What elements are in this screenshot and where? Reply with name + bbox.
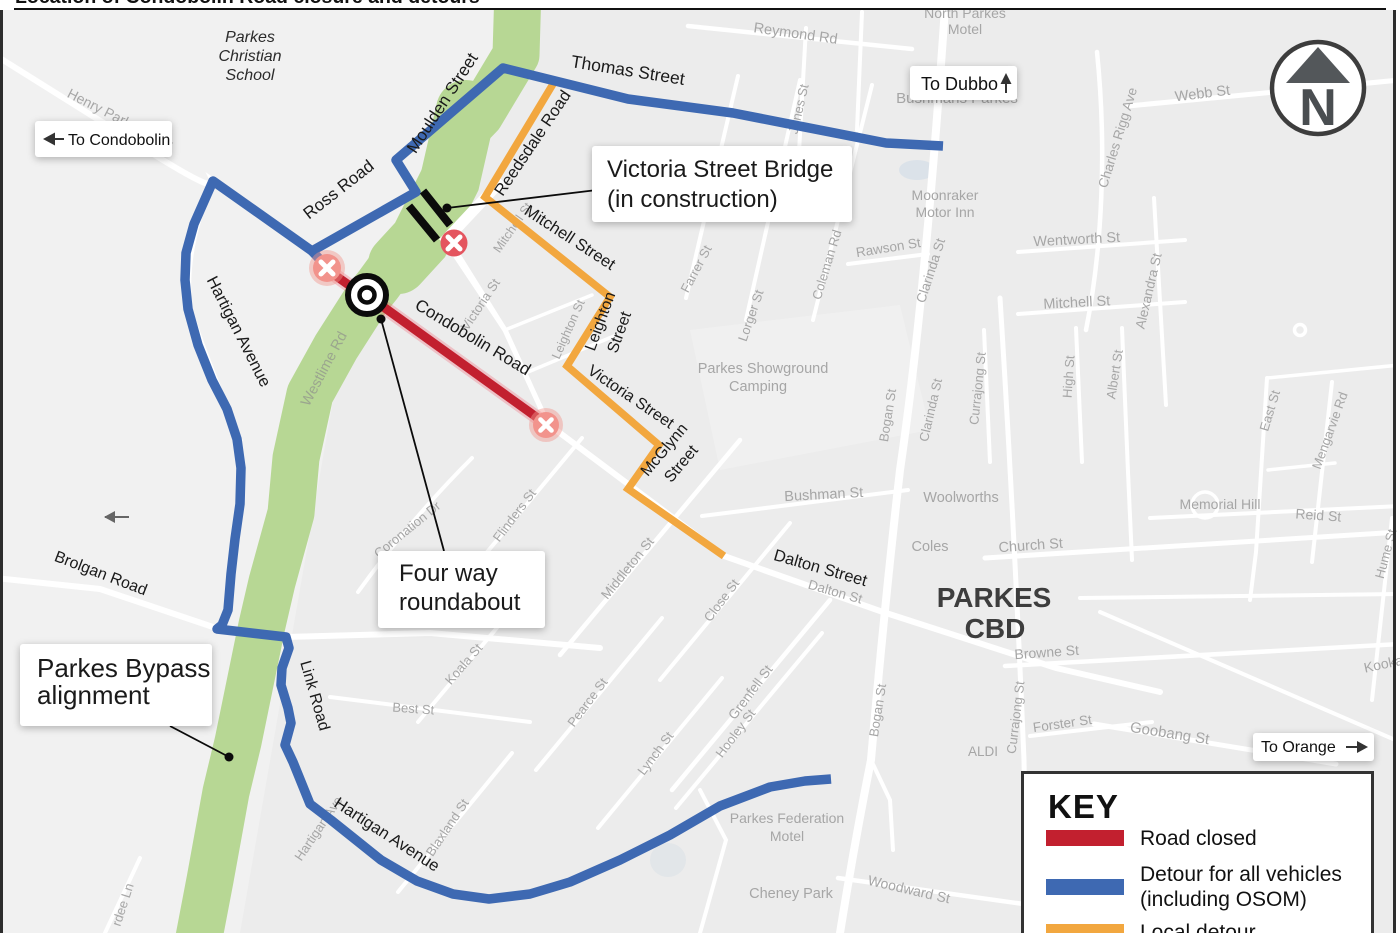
svg-text:Cheney Park: Cheney Park — [749, 886, 834, 902]
svg-text:PARKES: PARKES — [937, 582, 1052, 613]
svg-text:Woolworths: Woolworths — [923, 490, 998, 506]
svg-text:Christian: Christian — [218, 48, 281, 65]
svg-text:N: N — [1299, 79, 1337, 137]
svg-text:Coles: Coles — [911, 539, 948, 555]
svg-text:Reid St: Reid St — [1295, 505, 1342, 524]
svg-text:Memorial Hill: Memorial Hill — [1180, 496, 1261, 512]
svg-text:Motel: Motel — [948, 21, 982, 37]
svg-text:To Dubbo: To Dubbo — [921, 74, 998, 94]
svg-text:Moonraker: Moonraker — [912, 187, 979, 203]
svg-text:School: School — [226, 67, 275, 84]
svg-text:Motel: Motel — [770, 828, 804, 844]
svg-text:To Orange: To Orange — [1261, 739, 1336, 756]
svg-text:Camping: Camping — [729, 379, 787, 395]
svg-text:Parkes: Parkes — [225, 29, 275, 46]
svg-text:High St: High St — [1060, 355, 1078, 399]
svg-text:CBD: CBD — [965, 613, 1026, 644]
svg-text:Motor Inn: Motor Inn — [915, 204, 974, 220]
svg-text:Parkes Federation: Parkes Federation — [730, 810, 844, 826]
svg-text:ALDI: ALDI — [968, 744, 998, 759]
svg-text:Best St: Best St — [392, 700, 435, 718]
svg-text:To Condobolin: To Condobolin — [68, 132, 170, 149]
svg-text:Parkes Showground: Parkes Showground — [698, 361, 829, 377]
